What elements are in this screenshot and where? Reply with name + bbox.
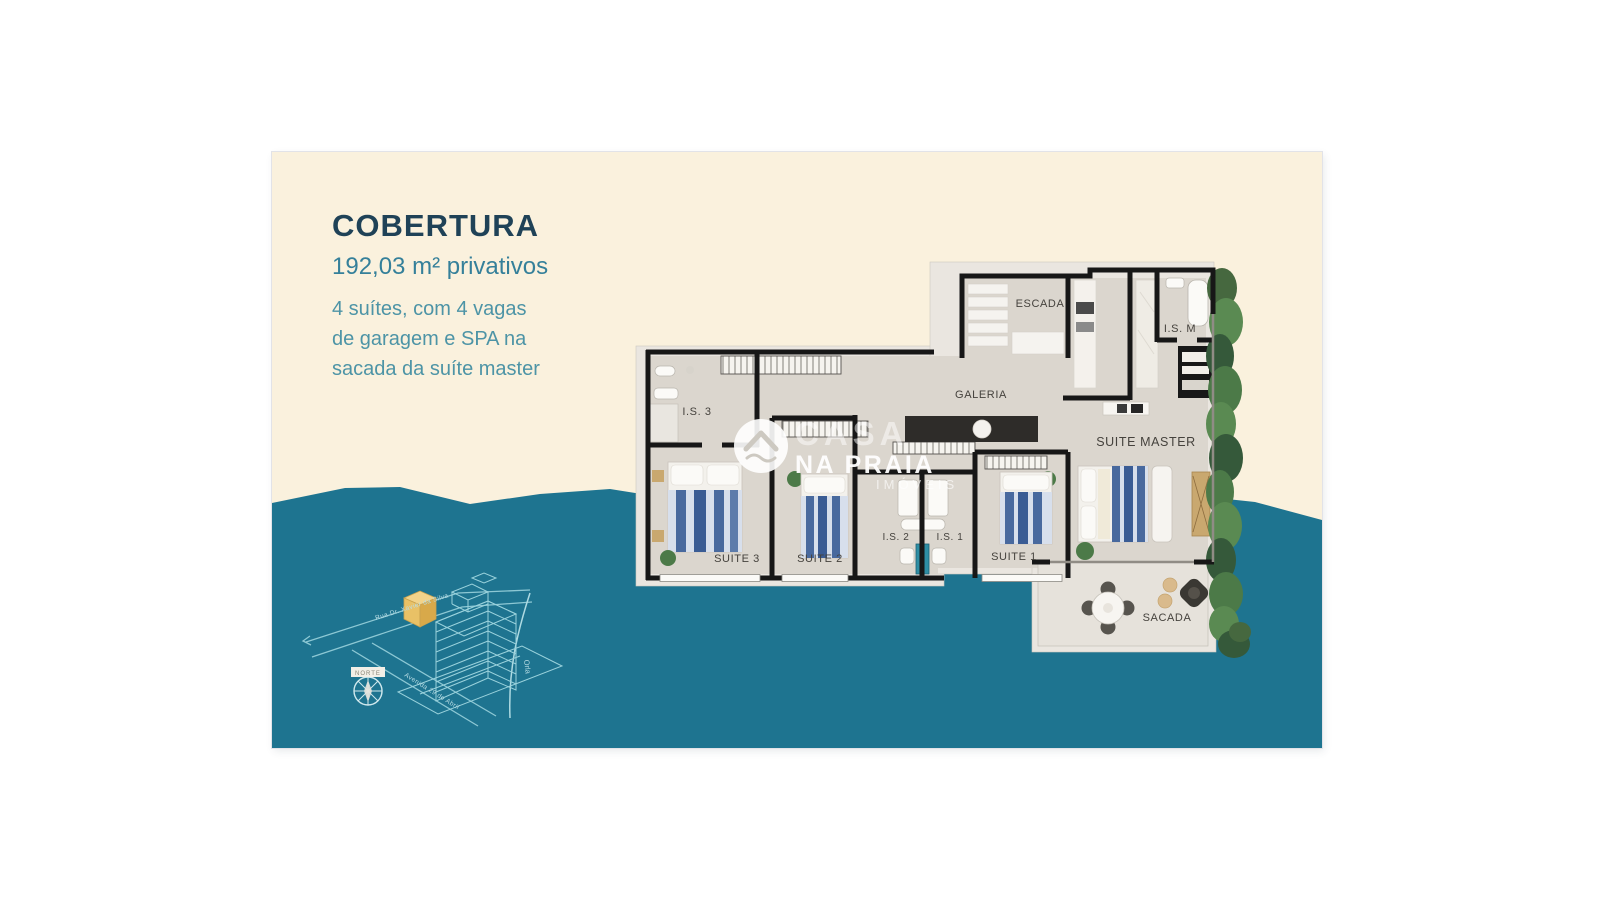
page: NORTE Rua Dr. Xavier da Silva Avenida 29… (0, 0, 1600, 900)
label-suite-1: SUITE 1 (991, 551, 1037, 563)
watermark-na-praia: NA PRAIA (795, 451, 935, 479)
watermark-casa: CASA (795, 415, 909, 452)
description-line: de garagem e SPA na (332, 324, 548, 354)
label-galeria: GALERIA (955, 389, 1007, 401)
label-suite-2: SUITE 2 (797, 553, 843, 565)
bed-suite1 (1000, 471, 1056, 544)
description-line: 4 suítes, com 4 vagas (332, 294, 548, 324)
area-subtitle: 192,03 m² privativos (332, 253, 548, 281)
description: 4 suítes, com 4 vagas de garagem e SPA n… (332, 294, 548, 384)
page-title: COBERTURA (332, 208, 548, 244)
label-suite-master: SUITE MASTER (1096, 435, 1196, 449)
description-line: sacada da suíte master (332, 354, 548, 384)
label-is-m: I.S. M (1164, 323, 1196, 335)
label-escada: ESCADA (1016, 298, 1065, 310)
info-panel: COBERTURA 192,03 m² privativos 4 suítes,… (332, 208, 548, 384)
label-sacada: SACADA (1143, 612, 1192, 624)
compass-label: NORTE (355, 671, 381, 677)
label-is-1: I.S. 1 (937, 532, 964, 543)
brochure-card: NORTE Rua Dr. Xavier da Silva Avenida 29… (272, 152, 1322, 748)
galeria-console (905, 416, 1038, 442)
watermark-imoveis: IMÓVEIS (876, 477, 958, 492)
label-is-2: I.S. 2 (883, 532, 910, 543)
shore-label: Orla (522, 659, 533, 675)
label-is-3: I.S. 3 (682, 406, 711, 418)
watermark-logo-circle (734, 419, 788, 473)
label-suite-3: SUITE 3 (714, 553, 760, 565)
